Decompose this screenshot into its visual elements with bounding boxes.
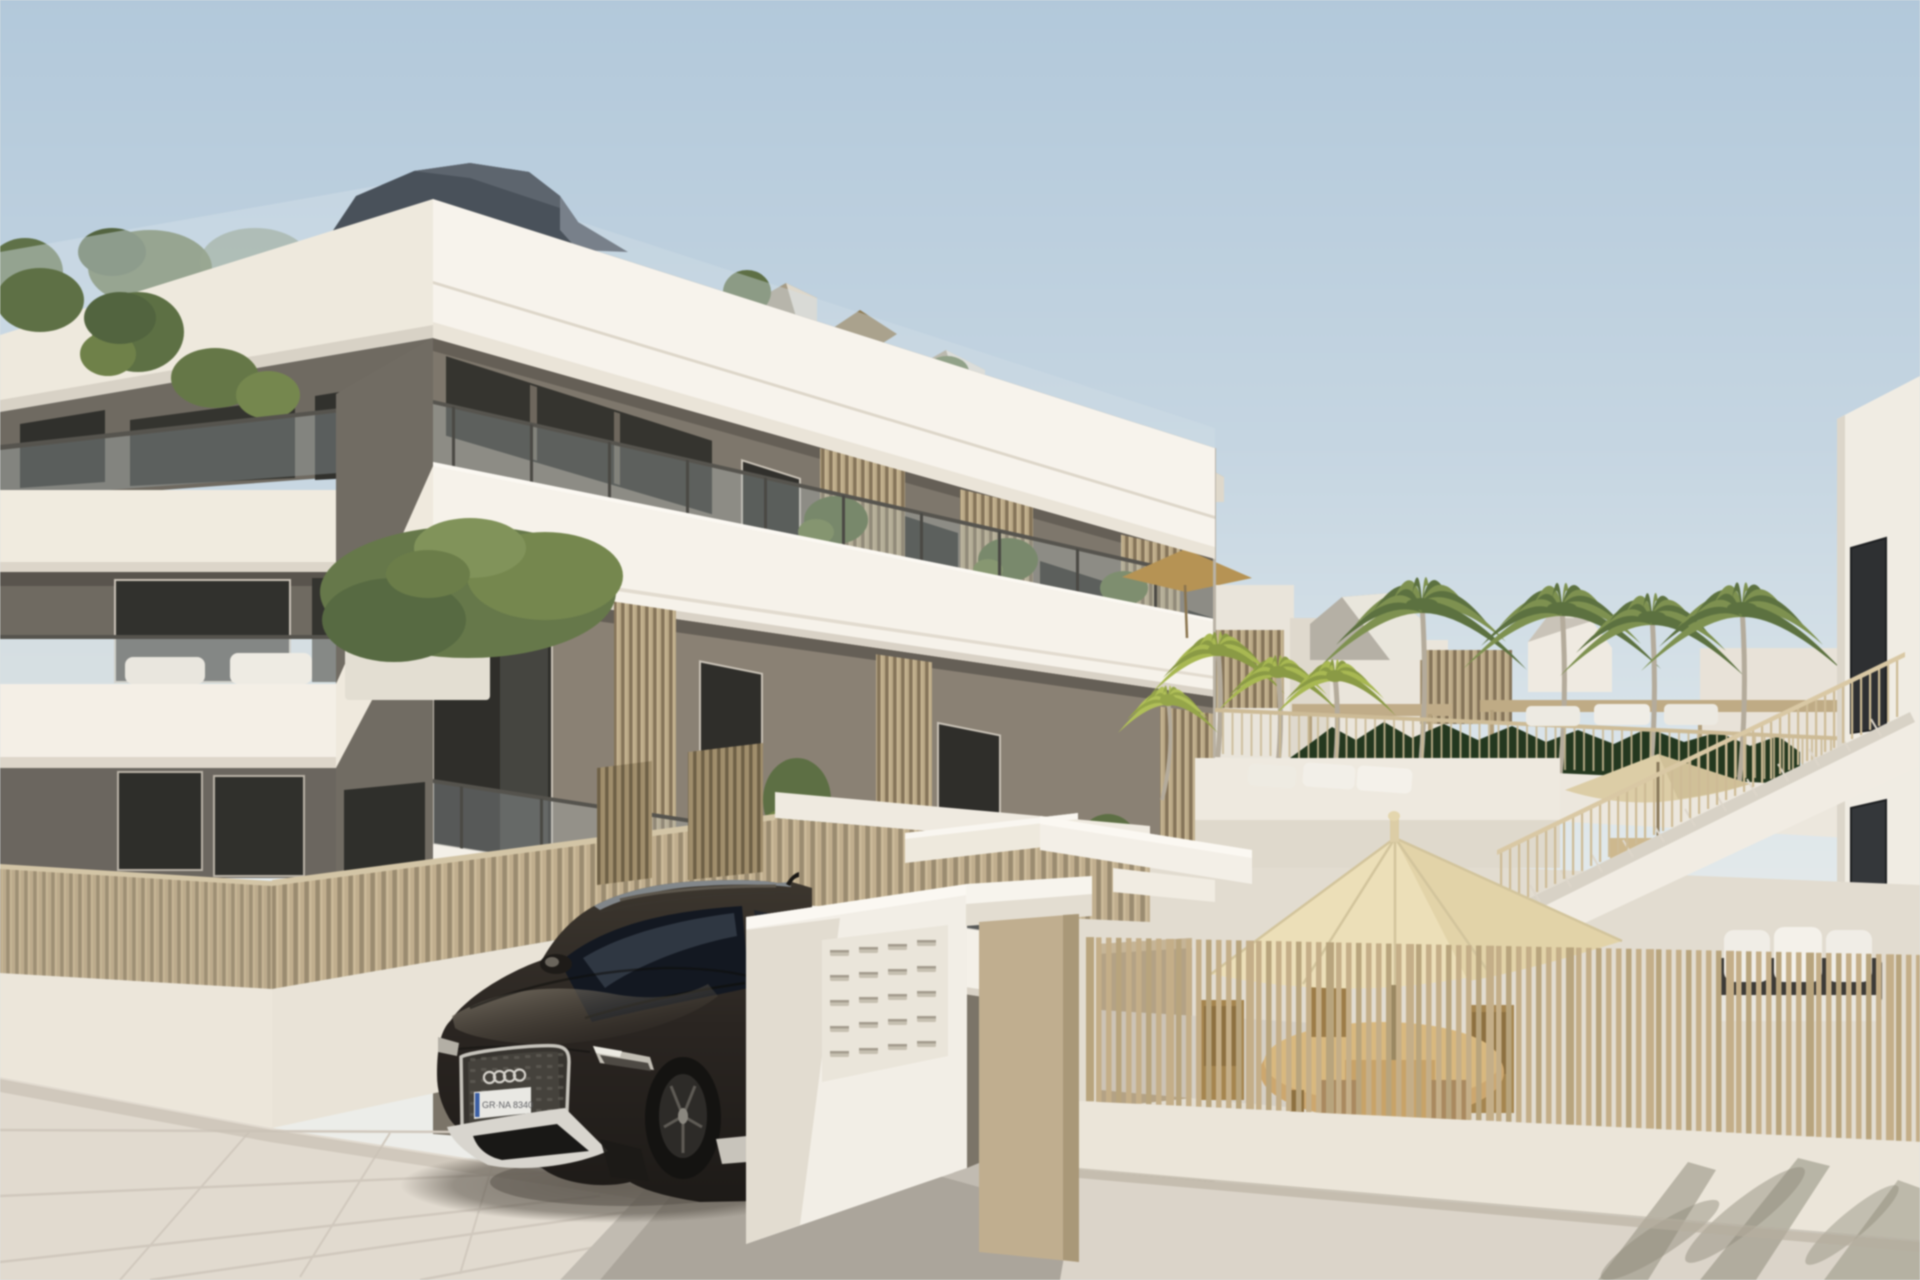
- svg-text:GR·NA 8340: GR·NA 8340: [482, 1100, 533, 1110]
